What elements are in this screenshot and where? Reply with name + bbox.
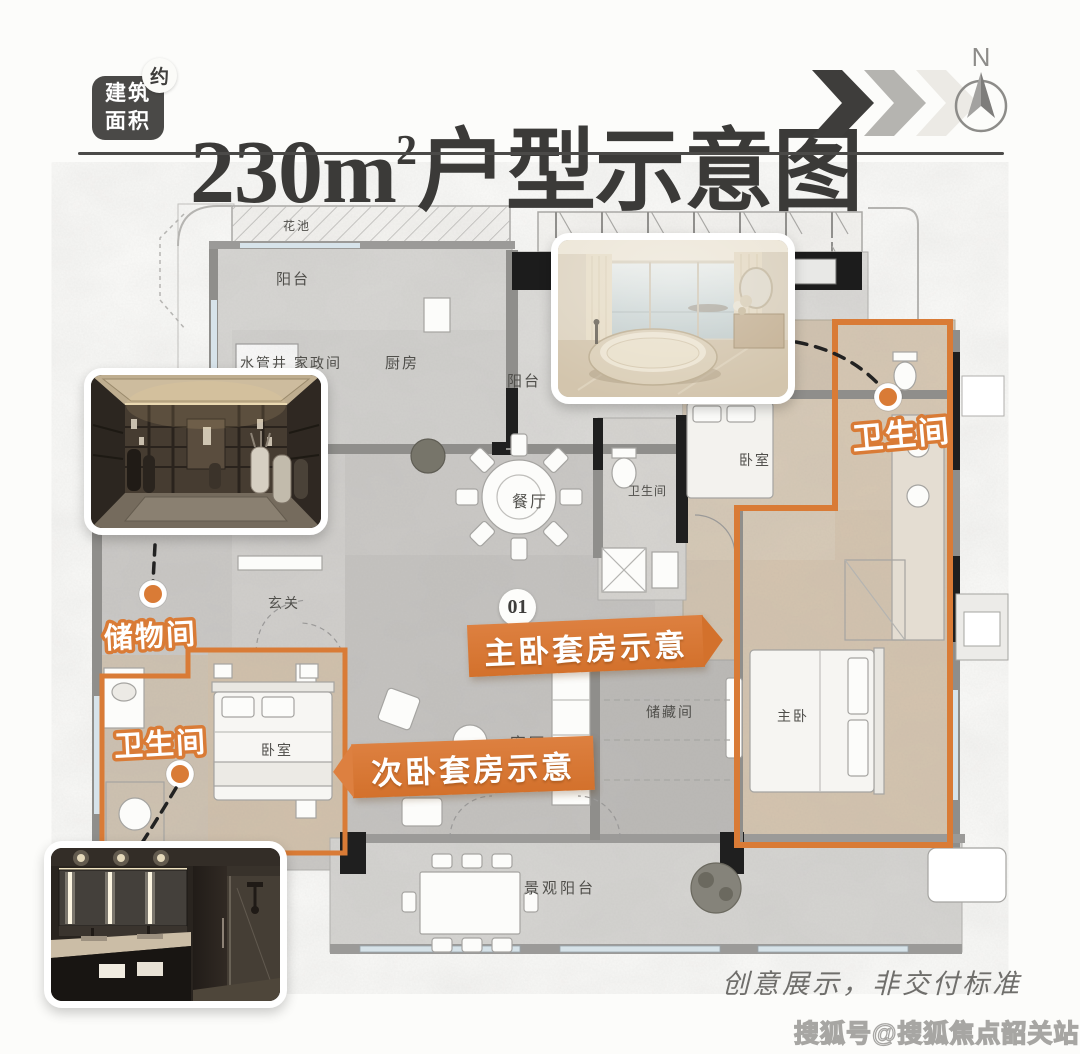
callout-storage: 储物间: [103, 618, 198, 656]
room-label-view-balcony: 景观阳台: [524, 877, 596, 898]
area-badge-line2: 面积: [105, 108, 151, 136]
master-bathroom-photo: [551, 233, 795, 404]
floorplan-poster: 建筑 面积 约 230m2户型示意图 N: [0, 0, 1080, 1054]
ribbon-secondary-suite: 次卧套房示意: [351, 736, 595, 798]
unit-number-badge: 01: [499, 589, 536, 626]
ribbon-master-suite: 主卧套房示意: [467, 615, 705, 677]
title-tail: 户型示意图: [417, 123, 862, 222]
title-area: 230m: [190, 123, 396, 222]
room-label-foyer: 玄关: [268, 593, 300, 613]
disclaimer-text: 创意展示，非交付标准: [722, 962, 1022, 1001]
approx-badge: 约: [142, 58, 177, 93]
page-title: 230m2户型示意图: [190, 98, 862, 228]
room-label-bedroom-left: 卧室: [261, 740, 293, 760]
watermark-text: 搜狐号@搜狐焦点韶关站: [794, 1014, 1079, 1050]
secondary-bathroom-photo-image: [51, 848, 280, 1001]
room-label-bedroom-mid: 卧室: [739, 450, 771, 470]
room-label-dining: 餐厅: [512, 488, 548, 512]
room-label-kitchen: 厨房: [385, 352, 419, 373]
room-label-balcony-mid: 阳台: [507, 370, 541, 391]
room-label-storeroom: 储藏间: [646, 702, 694, 722]
compass-n-label: N: [972, 42, 991, 72]
room-label-master-bedroom: 主卧: [777, 706, 809, 726]
room-label-balcony-top: 阳台: [276, 268, 310, 289]
callout-second-bath: 卫生间: [113, 726, 208, 764]
storage-room-photo: [84, 368, 328, 535]
storage-room-photo-image: [91, 375, 321, 528]
room-label-bath-small: 卫生间: [628, 482, 667, 499]
header-divider: [78, 152, 1004, 155]
secondary-bathroom-photo: [44, 841, 287, 1008]
master-bathroom-photo-image: [558, 240, 788, 397]
compass-icon: N: [948, 40, 1014, 142]
